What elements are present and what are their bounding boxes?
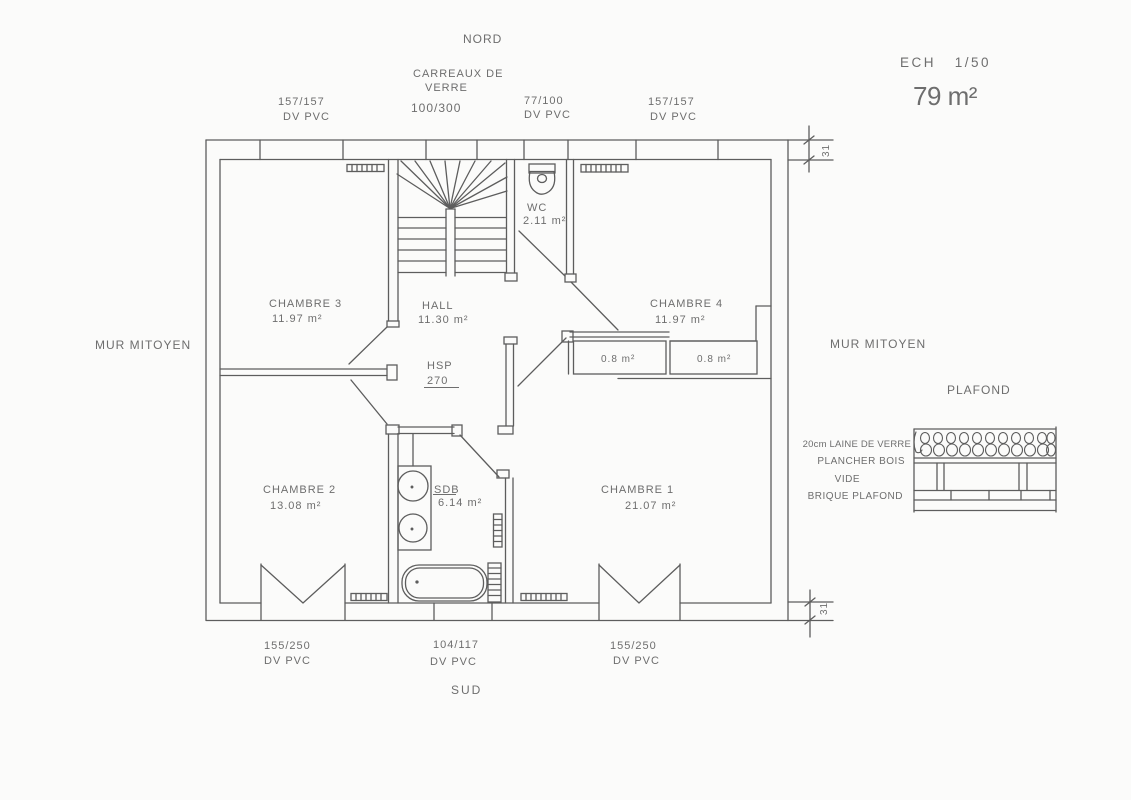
svg-text:2.11 m²: 2.11 m² — [523, 215, 566, 227]
svg-text:HALL: HALL — [422, 300, 454, 312]
svg-text:157/157: 157/157 — [648, 96, 695, 108]
svg-text:11.97 m²: 11.97 m² — [655, 314, 706, 326]
svg-text:DV PVC: DV PVC — [283, 111, 330, 123]
svg-text:VIDE: VIDE — [835, 474, 860, 485]
svg-text:0.8 m²: 0.8 m² — [697, 354, 731, 365]
svg-text:20cm LAINE DE VERRE: 20cm LAINE DE VERRE — [803, 439, 911, 450]
svg-text:MUR MITOYEN: MUR MITOYEN — [95, 338, 191, 352]
svg-text:31: 31 — [819, 602, 830, 615]
svg-text:11.97 m²: 11.97 m² — [272, 313, 323, 325]
svg-text:PLANCHER BOIS: PLANCHER BOIS — [817, 456, 905, 467]
svg-text:ECH 1/50: ECH 1/50 — [900, 55, 991, 70]
svg-text:155/250: 155/250 — [264, 640, 311, 652]
svg-text:CHAMBRE 2: CHAMBRE 2 — [263, 484, 336, 496]
svg-text:DV PVC: DV PVC — [524, 109, 571, 121]
svg-text:BRIQUE PLAFOND: BRIQUE PLAFOND — [808, 491, 903, 502]
svg-text:HSP: HSP — [427, 360, 453, 372]
svg-text:CARREAUX DE: CARREAUX DE — [413, 68, 503, 80]
svg-text:79 m²: 79 m² — [913, 81, 978, 111]
svg-text:CHAMBRE 1: CHAMBRE 1 — [601, 484, 674, 496]
svg-text:100/300: 100/300 — [411, 101, 461, 115]
svg-text:11.30 m²: 11.30 m² — [418, 314, 469, 326]
svg-text:CHAMBRE 3: CHAMBRE 3 — [269, 298, 342, 310]
svg-text:77/100: 77/100 — [524, 95, 564, 107]
svg-text:21.07 m²: 21.07 m² — [625, 500, 676, 512]
svg-text:PLAFOND: PLAFOND — [947, 383, 1011, 397]
svg-text:DV PVC: DV PVC — [613, 655, 660, 667]
svg-text:SUD: SUD — [451, 683, 482, 697]
svg-text:270: 270 — [427, 375, 448, 387]
svg-text:6.14 m²: 6.14 m² — [438, 497, 482, 509]
svg-text:MUR MITOYEN: MUR MITOYEN — [830, 337, 926, 351]
svg-text:155/250: 155/250 — [610, 640, 657, 652]
svg-text:31: 31 — [821, 144, 832, 157]
svg-text:0.8 m²: 0.8 m² — [601, 354, 635, 365]
svg-text:DV PVC: DV PVC — [650, 111, 697, 123]
svg-text:NORD: NORD — [463, 32, 502, 46]
svg-text:104/117: 104/117 — [433, 639, 479, 651]
svg-text:CHAMBRE 4: CHAMBRE 4 — [650, 298, 723, 310]
svg-text:157/157: 157/157 — [278, 96, 325, 108]
svg-text:DV PVC: DV PVC — [430, 656, 477, 668]
svg-text:13.08 m²: 13.08 m² — [270, 500, 321, 512]
svg-text:WC: WC — [527, 202, 547, 214]
svg-text:VERRE: VERRE — [425, 82, 468, 94]
svg-text:DV PVC: DV PVC — [264, 655, 311, 667]
